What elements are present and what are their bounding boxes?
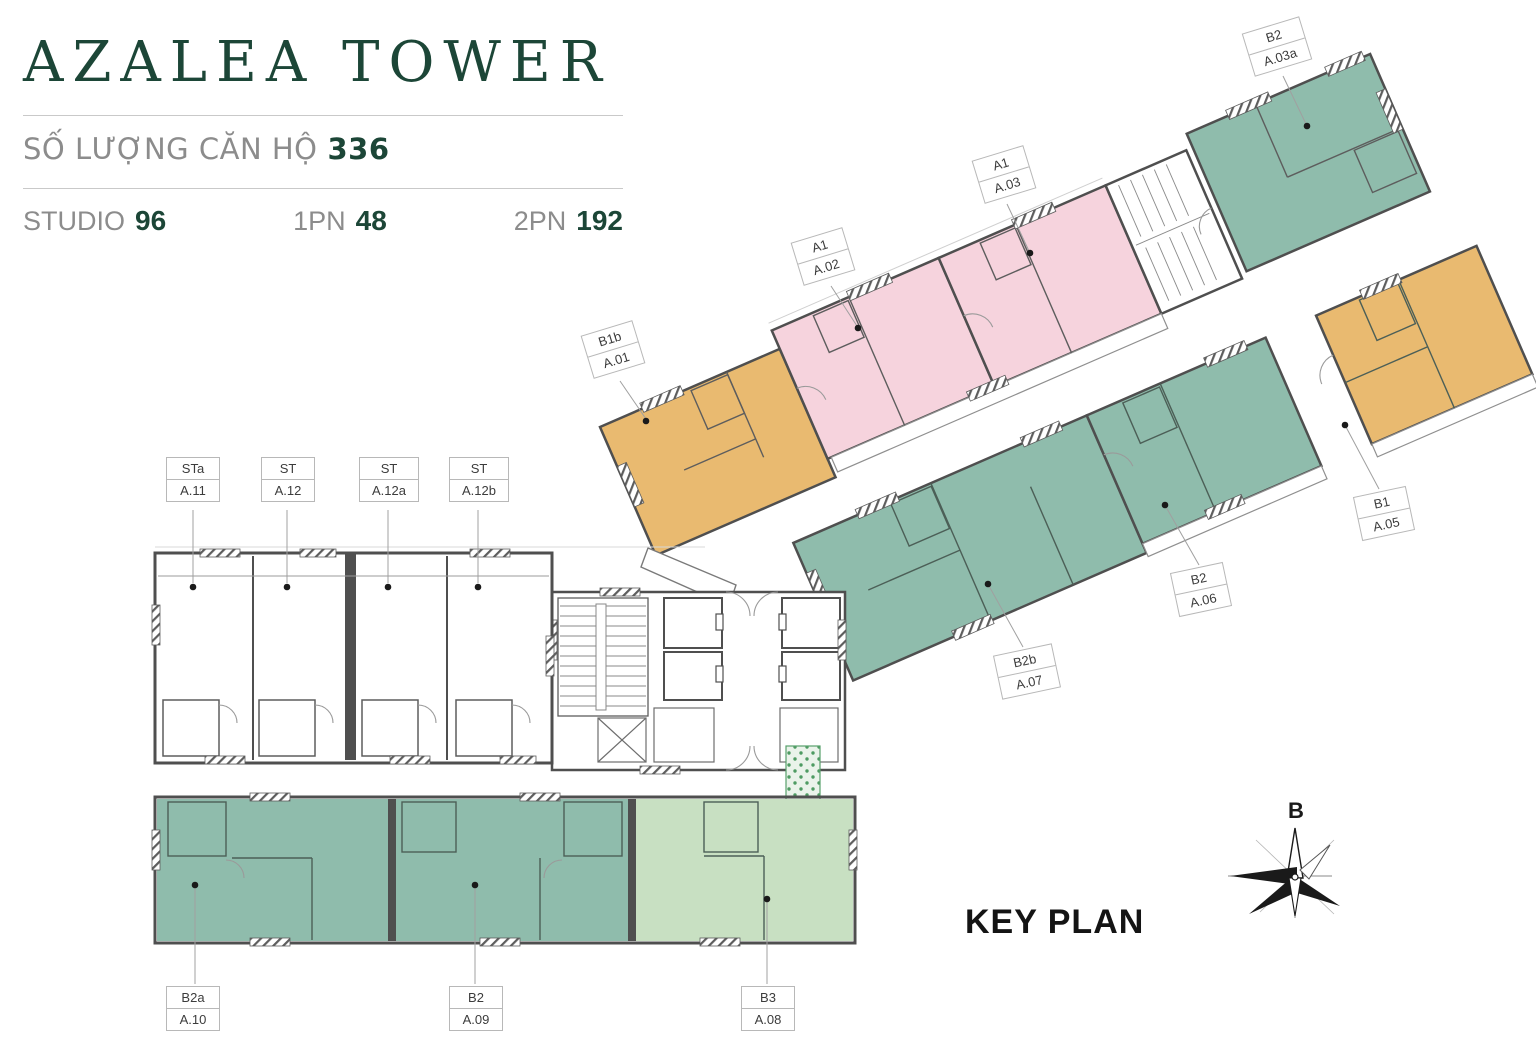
header-block: AZALEA TOWER SỐ LƯỢNG CĂN HỘ336 STUDIO96… — [23, 34, 623, 237]
divider — [23, 188, 623, 189]
unit-type: ST — [450, 458, 508, 480]
unit-number: A.12 — [262, 480, 314, 501]
unit-shape-a08 — [636, 799, 853, 941]
unit-mix-stats: STUDIO96 1PN48 2PN192 — [23, 205, 623, 237]
units-count-label: SỐ LƯỢNG CĂN HỘ — [23, 132, 317, 166]
unit-tag-a11: STa A.11 — [166, 457, 220, 502]
stat-2pn: 2PN192 — [514, 205, 623, 237]
unit-shape-a10 — [157, 799, 388, 941]
unit-tag-a08: B3 A.08 — [741, 986, 795, 1031]
unit-type: B2 — [450, 987, 502, 1009]
unit-type: ST — [360, 458, 418, 480]
unit-number: A.09 — [450, 1009, 502, 1030]
elevator-car — [664, 652, 722, 700]
elevator-car — [782, 652, 840, 700]
unit-number: A.12b — [450, 480, 508, 501]
unit-tag-a10: B2a A.10 — [166, 986, 220, 1031]
key-plan-label: KEY PLAN — [965, 903, 1144, 942]
page-title: AZALEA TOWER — [23, 34, 623, 93]
elevator-car — [782, 598, 840, 648]
stair-divider — [596, 604, 606, 710]
bottom-wing — [152, 793, 857, 946]
unit-tag-a09: B2 A.09 — [449, 986, 503, 1031]
unit-shape-a05 — [1316, 246, 1532, 444]
unit-shape-a09 — [396, 799, 628, 941]
compass-north-label: B — [1284, 798, 1308, 824]
unit-tag-a12a: ST A.12a — [359, 457, 419, 502]
units-count-value: 336 — [327, 132, 389, 166]
unit-type: B2a — [167, 987, 219, 1009]
stat-1pn: 1PN48 — [293, 205, 387, 237]
unit-tag-a12b: ST A.12b — [449, 457, 509, 502]
divider — [23, 115, 623, 116]
unit-number: A.08 — [742, 1009, 794, 1030]
unit-number: A.10 — [167, 1009, 219, 1030]
compass-rose-icon — [1228, 828, 1340, 918]
landscape-patch — [786, 746, 820, 800]
unit-number: A.11 — [167, 480, 219, 501]
floor-plan-page: B1b A.01 A1 A.02 A1 A.03 B2 A.03a B1 A.0… — [0, 0, 1536, 1064]
unit-tag-a12: ST A.12 — [261, 457, 315, 502]
unit-type: STa — [167, 458, 219, 480]
unit-type: B3 — [742, 987, 794, 1009]
units-count-line: SỐ LƯỢNG CĂN HỘ336 — [23, 132, 623, 166]
elevator-car — [664, 598, 722, 648]
stat-studio: STUDIO96 — [23, 205, 166, 237]
unit-type: ST — [262, 458, 314, 480]
unit-number: A.12a — [360, 480, 418, 501]
